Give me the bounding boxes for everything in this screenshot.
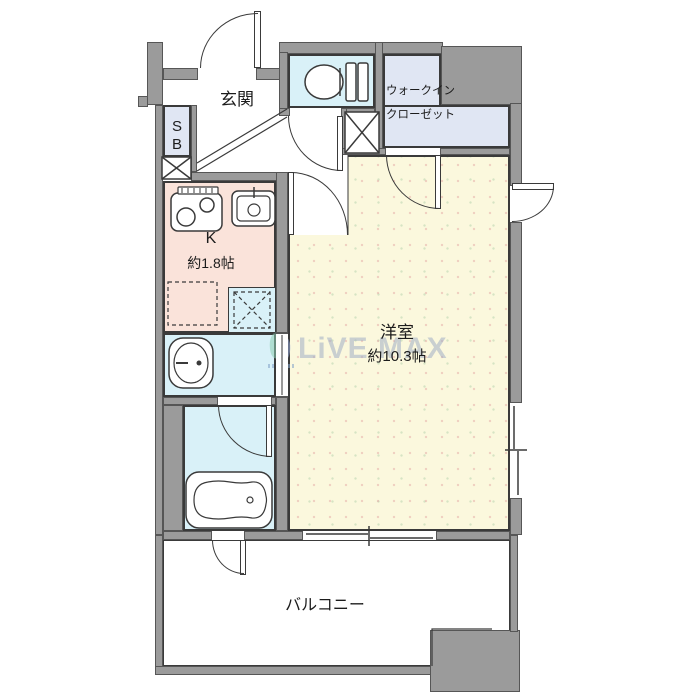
linework-overlay [0, 0, 700, 700]
kitchen-size-label: 約1.8帖 [187, 255, 234, 271]
walk-in-closet-label-line2: クローゼット [386, 109, 455, 122]
balcony-label: バルコニー [285, 597, 365, 615]
balcony-sliding-window [306, 526, 433, 546]
western-room-size-label: 約10.3帖 [367, 348, 426, 365]
side-sliding-window [505, 406, 527, 495]
pipe-space-x-icon [345, 112, 379, 153]
shaft-x-icon [162, 157, 191, 179]
kitchen-label: K [206, 230, 217, 248]
shoe-box-label-line2: B [172, 136, 182, 153]
washer-space-icon [234, 292, 270, 328]
shoe-box-label-line1: S [172, 118, 182, 135]
entrance-step-line [197, 109, 287, 171]
refrigerator-space [168, 282, 217, 325]
floorplan: LiVE MAX [0, 0, 700, 700]
walk-in-closet-label-line1: ウォークイン [386, 85, 455, 98]
entrance-label: 玄関 [220, 90, 254, 110]
western-room-label: 洋室 [380, 323, 414, 343]
balcony-step-line [432, 629, 492, 666]
